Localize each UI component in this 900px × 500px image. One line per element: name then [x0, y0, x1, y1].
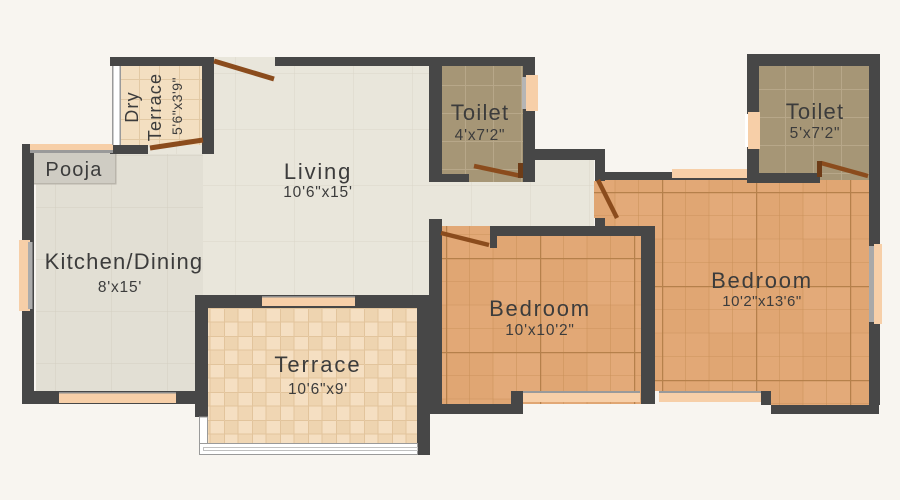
- svg-text:Toilet: Toilet: [786, 99, 845, 124]
- svg-text:Toilet: Toilet: [451, 100, 510, 125]
- svg-text:10'6"x15': 10'6"x15': [283, 184, 352, 201]
- svg-text:Terrace: Terrace: [274, 352, 361, 377]
- svg-text:10'6"x9': 10'6"x9': [288, 381, 348, 398]
- svg-text:5'6"x3'9": 5'6"x3'9": [169, 77, 185, 135]
- svg-text:10'x10'2": 10'x10'2": [505, 322, 574, 339]
- svg-text:Dry: Dry: [122, 91, 142, 123]
- svg-text:Bedroom: Bedroom: [711, 268, 813, 293]
- svg-text:Living: Living: [284, 159, 352, 184]
- svg-text:10'2"x13'6": 10'2"x13'6": [722, 293, 801, 310]
- svg-text:Bedroom: Bedroom: [489, 296, 591, 321]
- svg-text:Terrace: Terrace: [145, 73, 165, 141]
- svg-text:5'x7'2": 5'x7'2": [790, 125, 841, 142]
- svg-text:8'x15': 8'x15': [98, 279, 142, 296]
- svg-text:4'x7'2": 4'x7'2": [455, 127, 506, 144]
- svg-text:Pooja: Pooja: [45, 159, 102, 181]
- svg-text:Kitchen/Dining: Kitchen/Dining: [45, 249, 204, 274]
